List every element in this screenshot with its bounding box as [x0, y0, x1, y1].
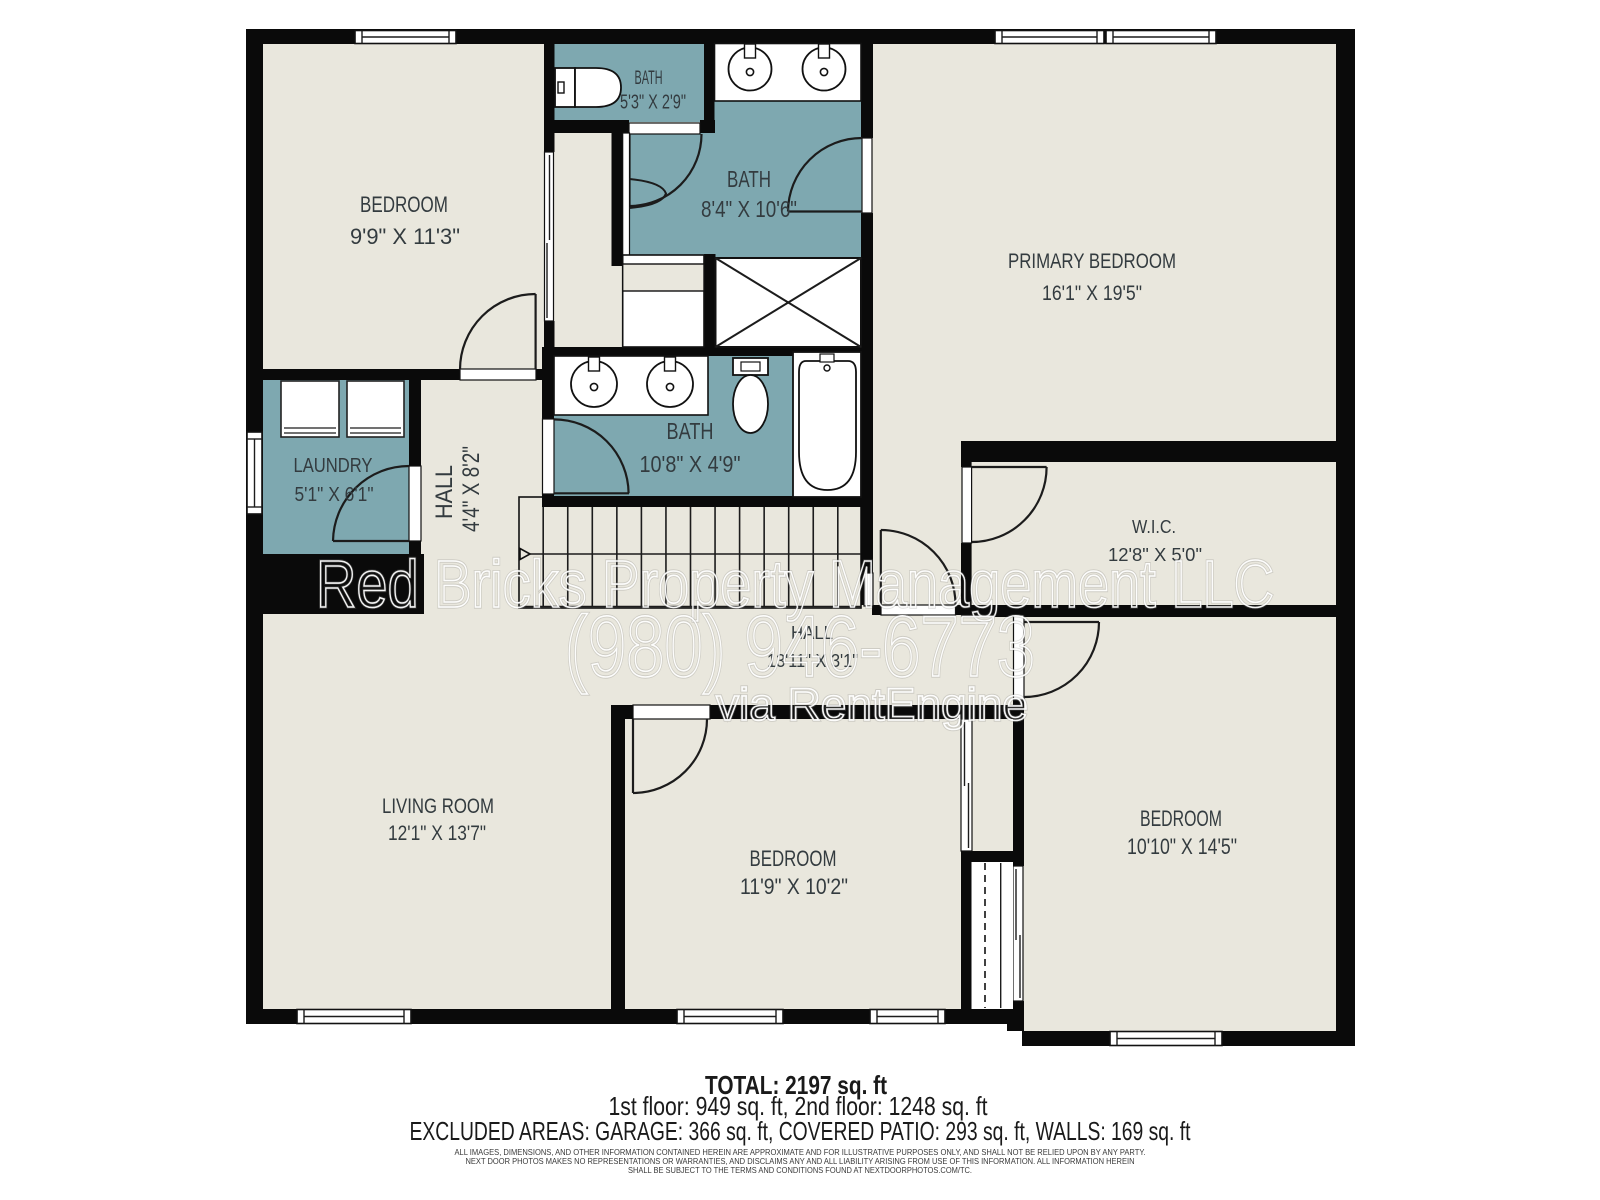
- svg-text:11'9" X 10'2": 11'9" X 10'2": [740, 874, 848, 899]
- svg-text:5'3" X 2'9": 5'3" X 2'9": [620, 92, 686, 114]
- svg-text:SHALL BE SUBJECT TO THE TERMS: SHALL BE SUBJECT TO THE TERMS AND CONDIT…: [628, 1165, 972, 1175]
- svg-text:LIVING ROOM: LIVING ROOM: [382, 795, 494, 818]
- svg-text:8'4" X 10'6": 8'4" X 10'6": [701, 196, 797, 222]
- svg-text:BEDROOM: BEDROOM: [750, 846, 837, 871]
- svg-text:EXCLUDED AREAS: GARAGE: 366 sq: EXCLUDED AREAS: GARAGE: 366 sq. ft, COVE…: [410, 1116, 1192, 1146]
- svg-text:12'1" X 13'7": 12'1" X 13'7": [388, 822, 486, 845]
- svg-text:10'10" X 14'5": 10'10" X 14'5": [1127, 834, 1237, 859]
- svg-text:5'1" X 6'1": 5'1" X 6'1": [295, 484, 374, 506]
- svg-text:HALL: HALL: [431, 465, 458, 519]
- svg-text:BATH: BATH: [667, 418, 714, 444]
- svg-text:W.I.C.: W.I.C.: [1132, 517, 1176, 537]
- svg-text:4'4" X 8'2": 4'4" X 8'2": [458, 446, 485, 532]
- svg-text:BEDROOM: BEDROOM: [360, 192, 448, 217]
- svg-text:BATH: BATH: [727, 166, 771, 192]
- svg-text:BEDROOM: BEDROOM: [1140, 806, 1222, 831]
- svg-text:PRIMARY BEDROOM: PRIMARY BEDROOM: [1008, 250, 1176, 273]
- svg-text:LAUNDRY: LAUNDRY: [294, 455, 373, 477]
- svg-text:16'1" X 19'5": 16'1" X 19'5": [1042, 282, 1142, 305]
- svg-text:BATH: BATH: [635, 68, 663, 89]
- svg-text:9'9" X 11'3": 9'9" X 11'3": [350, 224, 460, 249]
- svg-text:10'8" X 4'9": 10'8" X 4'9": [640, 451, 741, 477]
- svg-text:via RentEngine: via RentEngine: [716, 679, 1028, 730]
